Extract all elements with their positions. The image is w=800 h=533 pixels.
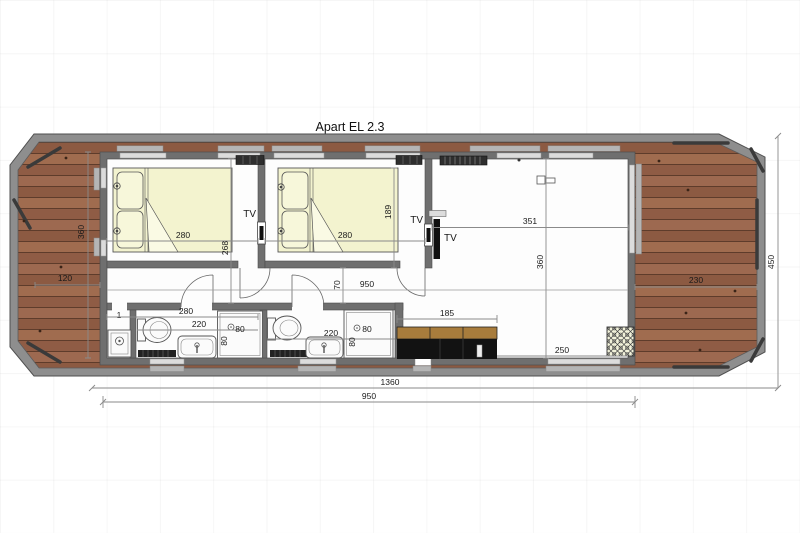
closet-number: 1 (117, 311, 122, 320)
dim-bedroom1-depth: 268 (220, 241, 230, 255)
tv-shelf (429, 211, 446, 217)
wall-vent (396, 156, 422, 165)
dim-bow-deck-length: 360 (76, 225, 86, 239)
dim-bedroom2-width: 280 (338, 230, 352, 240)
shower-2 (344, 310, 393, 358)
kitchen (397, 327, 497, 359)
dim-entrance-zone: 280 (179, 306, 193, 316)
dim-hall-passage: 70 (332, 280, 342, 290)
dim-living-depth: 360 (535, 255, 545, 269)
shower-1 (218, 311, 263, 358)
tv-living (434, 219, 441, 259)
boiler (108, 330, 131, 357)
towel-radiator-2 (270, 350, 308, 357)
dim-bed2-length: 189 (383, 205, 393, 219)
dim-shower2-v: 80 (347, 337, 357, 347)
floor-plan-drawing: TV TV TV (0, 0, 800, 533)
dim-shower1-v: 80 (219, 336, 229, 346)
towel-radiator-1 (138, 350, 176, 357)
kitchen-counter-top (397, 327, 497, 339)
tv-label-living: TV (444, 233, 457, 244)
dim-kitchen-to-wall: 250 (555, 345, 569, 355)
dim-cabin-length: 950 (362, 391, 376, 401)
dim-interior-length: 950 (360, 279, 374, 289)
dim-bow-deck-width: 120 (58, 273, 72, 283)
floor-plan-page: TV TV TV (0, 0, 800, 533)
dim-shower1: 80 (235, 324, 245, 334)
tv-label-1: TV (243, 209, 256, 220)
dim-bathroom2-width: 220 (324, 328, 338, 338)
dim-hull-length: 1360 (381, 377, 400, 387)
dim-bedroom1-width: 280 (176, 230, 190, 240)
technical-hatch-unit (607, 327, 634, 356)
tv-label-2: TV (410, 215, 423, 226)
plan-title: Apart EL 2.3 (315, 120, 384, 134)
dim-living-width: 351 (523, 216, 537, 226)
dim-stern-deck-width: 230 (689, 275, 703, 285)
dim-bathroom1-width: 220 (192, 319, 206, 329)
ceiling-point (518, 159, 521, 162)
toilet-2 (273, 316, 301, 340)
dim-kitchen-length: 185 (440, 308, 454, 318)
dim-shower2: 80 (362, 324, 372, 334)
dim-hull-width: 450 (766, 255, 776, 269)
cabinet-handle (477, 345, 482, 357)
